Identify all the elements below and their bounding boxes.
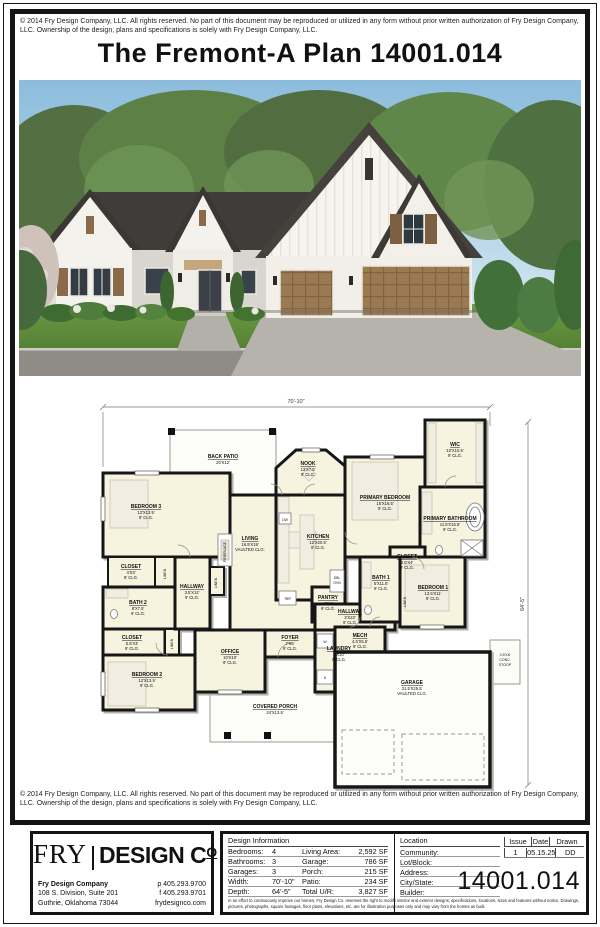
design-info-row: Bathrooms:3Garage:786 SF <box>228 857 388 867</box>
logo-co-mark: O <box>206 844 217 860</box>
svg-text:70'-10": 70'-10" <box>287 399 304 405</box>
garage-doors <box>273 266 470 316</box>
door-header <box>184 260 222 270</box>
svg-text:9' CLG.: 9' CLG. <box>185 595 199 600</box>
svg-text:VAULTED CLG.: VAULTED CLG. <box>397 691 427 696</box>
svg-text:LINEN: LINEN <box>170 638 174 649</box>
svg-text:9' CLG.: 9' CLG. <box>400 565 414 570</box>
svg-text:9' CLG.: 9' CLG. <box>353 644 367 649</box>
svg-text:CONC.: CONC. <box>499 658 511 662</box>
svg-text:64'-5": 64'-5" <box>520 597 526 611</box>
page-title: The Fremont-A Plan 14001.014 <box>15 38 585 69</box>
svg-text:OVN: OVN <box>333 581 341 585</box>
svg-text:9' CLG.: 9' CLG. <box>374 586 388 591</box>
svg-text:LINEN: LINEN <box>403 596 407 607</box>
svg-text:9' CLG.: 9' CLG. <box>131 611 145 616</box>
svg-text:9' CLG.: 9' CLG. <box>124 575 138 580</box>
location-header: Location <box>400 836 500 847</box>
svg-text:9' CLG.: 9' CLG. <box>332 657 346 662</box>
svg-text:VAULTED CLG.: VAULTED CLG. <box>235 547 265 552</box>
svg-text:9' CLG.: 9' CLG. <box>343 620 357 625</box>
design-info-column: Design Information Bedrooms:4Living Area… <box>228 836 388 897</box>
svg-text:9' CLG.: 9' CLG. <box>140 683 154 688</box>
svg-text:DBL: DBL <box>334 576 341 580</box>
svg-text:3.5'X8': 3.5'X8' <box>500 653 511 657</box>
svg-text:9' CLG.: 9' CLG. <box>378 506 392 511</box>
svg-text:LINEN: LINEN <box>214 577 218 588</box>
design-info-row: Depth:64'-5"Total U/R:3,827 SF <box>228 887 388 897</box>
label-mech: MECH4.5'X5.5'9' CLG. <box>352 633 368 649</box>
svg-text:9' CLG.: 9' CLG. <box>139 515 153 520</box>
design-info-header: Design Information <box>228 836 388 847</box>
label-bath-1: BATH 15'X11.5'9' CLG. <box>372 575 390 591</box>
copyright-bottom: © 2014 Fry Design Company, LLC. All righ… <box>20 790 580 808</box>
logo-design-text: DESIGN C <box>99 842 206 868</box>
svg-text:FIREPLACE: FIREPLACE <box>223 541 227 562</box>
window <box>403 214 424 244</box>
shutter <box>390 214 402 244</box>
garage-door-double <box>362 266 470 316</box>
company-info: Fry Design Company 108 S. Division, Suit… <box>38 880 206 908</box>
title-block: Design Information Bedrooms:4Living Area… <box>220 831 589 915</box>
plan-sheet: © 2014 Fry Design Company, LLC. All righ… <box>0 0 600 927</box>
company-contact: p 405.293.9700 f 405.293.9701 frydesignc… <box>155 880 206 908</box>
logo-fry-text: FRY <box>33 839 87 869</box>
svg-text:LINEN: LINEN <box>163 568 167 579</box>
svg-text:REF: REF <box>285 597 292 601</box>
design-info-row: Width:70'-10"Patio:234 SF <box>228 877 388 887</box>
location-row: Lot/Block: <box>400 857 500 867</box>
floor-plan: BACK PATIO20'X12' BEDROOM 312'X13.5'9' C… <box>50 382 550 792</box>
svg-text:9' CLG.: 9' CLG. <box>125 646 139 651</box>
svg-text:24'X13.5': 24'X13.5' <box>266 710 283 715</box>
svg-text:DW: DW <box>282 518 288 522</box>
company-address: Fry Design Company 108 S. Division, Suit… <box>38 880 118 908</box>
issue-table-values: 1 05.15.25 DD <box>504 847 584 858</box>
lantern <box>349 276 353 285</box>
svg-text:9' CLG.: 9' CLG. <box>301 472 315 477</box>
lantern <box>273 276 277 285</box>
svg-text:STOOP: STOOP <box>499 663 512 667</box>
svg-text:9' CLG.: 9' CLG. <box>223 660 237 665</box>
location-row: Community: <box>400 847 500 857</box>
lantern <box>226 273 230 282</box>
garage-door-single <box>280 270 333 316</box>
label-nook: NOOK13'X7.5'9' CLG. <box>301 461 316 477</box>
logo-divider <box>92 846 94 870</box>
attic-vent <box>199 210 206 226</box>
svg-text:9' CLG.: 9' CLG. <box>443 527 457 532</box>
shutter <box>113 268 124 296</box>
svg-text:9' CLG.: 9' CLG. <box>283 646 297 651</box>
shutter <box>425 214 437 244</box>
plan-number: 14001.014 <box>457 867 580 896</box>
svg-text:9' CLG.: 9' CLG. <box>426 596 440 601</box>
svg-text:20'X12': 20'X12' <box>216 460 230 465</box>
company-logo: FRYDESIGN CO <box>33 839 211 872</box>
lantern <box>178 273 182 282</box>
svg-text:9' CLG.: 9' CLG. <box>311 545 325 550</box>
attic-vent <box>86 216 94 234</box>
house-render <box>19 80 581 376</box>
svg-text:9' CLG.: 9' CLG. <box>448 453 462 458</box>
label-stoop: 3.5'X8'CONC.STOOP <box>499 653 512 667</box>
design-info-row: Garages:3Porch:215 SF <box>228 867 388 877</box>
svg-text:9' CLG.: 9' CLG. <box>321 606 335 611</box>
issue-table: Issue Date Drawn 1 05.15.25 DD <box>504 836 584 858</box>
disclaimer-text: In an effort to continuously improve our… <box>228 898 583 910</box>
design-info-row: Bedrooms:4Living Area:2,592 SF <box>228 847 388 857</box>
issue-table-header: Issue Date Drawn <box>504 836 584 847</box>
logo-box: FRYDESIGN CO Fry Design Company 108 S. D… <box>30 831 214 915</box>
attic-vent <box>365 158 373 180</box>
main-frame: © 2014 Fry Design Company, LLC. All righ… <box>10 9 590 825</box>
copyright-top: © 2014 Fry Design Company, LLC. All righ… <box>20 17 580 35</box>
